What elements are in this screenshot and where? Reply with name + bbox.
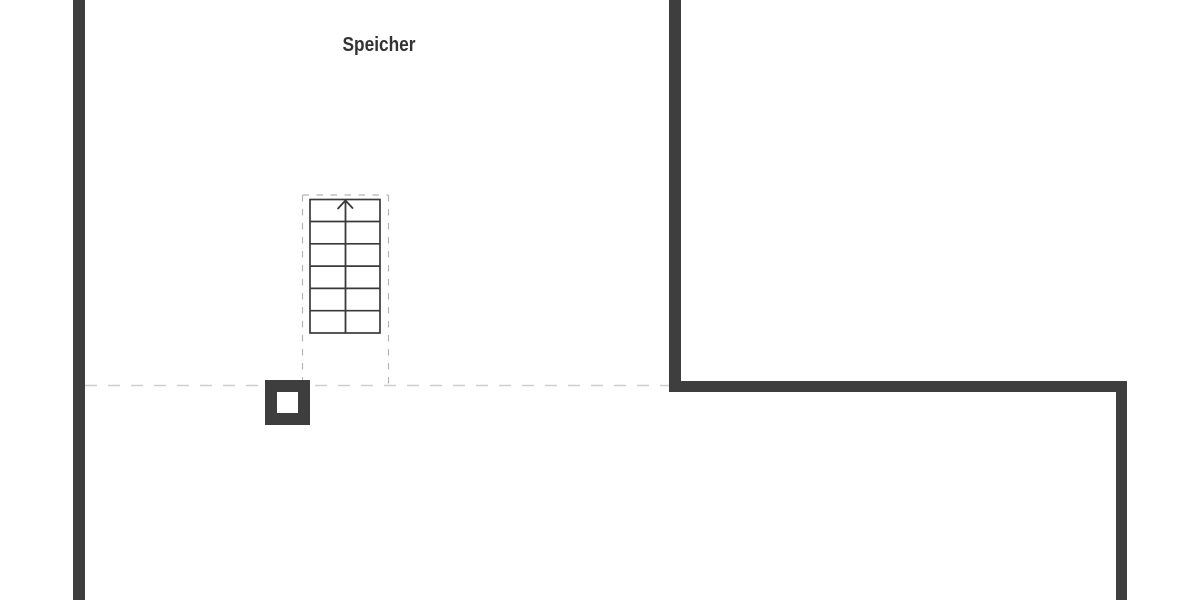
svg-text:Speicher: Speicher <box>343 33 416 56</box>
